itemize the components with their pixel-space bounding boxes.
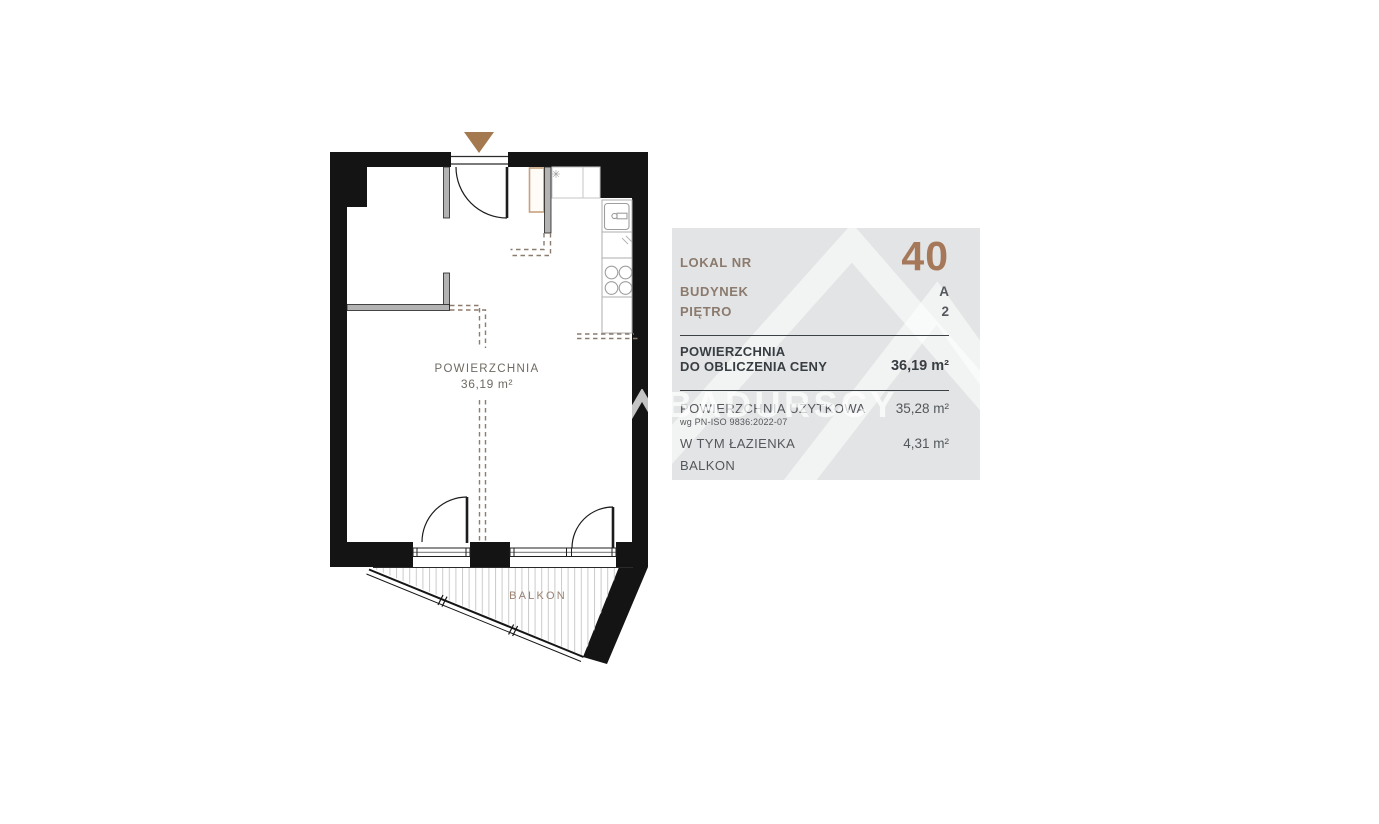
balcony-label: BALKON [509,590,567,602]
hall-partition [545,167,552,233]
bathroom-label: W TYM ŁAZIENKA [680,436,795,451]
panel-divider-2 [680,390,949,391]
bathroom-row: W TYM ŁAZIENKA 4,31 m² [680,436,949,451]
balcony-row: BALKON [680,458,949,473]
balcony-door-right [510,507,616,557]
kitchen-stove [605,266,632,294]
usable-area-value: 35,28 m² [896,401,949,416]
usable-area-row: POWIERZCHNIA UŻYTKOWA 35,28 m² [680,401,949,416]
entrance-door [456,167,507,218]
unit-number-row: LOKAL NR 40 [680,237,949,275]
unit-info-panel: LOKAL NR 40 BUDYNEK A PIĘTRO 2 POWIERZCH… [672,228,980,480]
price-area-label-line1: POWIERZCHNIA [680,344,785,359]
usable-area-label: POWIERZCHNIA UŻYTKOWA [680,401,866,416]
building-label: BUDYNEK [680,284,748,299]
floor-plan-page: ✳ [0,0,1379,824]
price-area-label-line2: DO OBLICZENIA CENY [680,359,827,374]
panel-divider [680,335,949,336]
counter-drain-mark [622,236,632,244]
usable-area-norm-note: wg PN-ISO 9836:2022-07 [680,417,949,427]
wardrobe [530,168,545,212]
balcony-door-left [413,497,470,557]
price-area-value: 36,19 m² [891,358,949,374]
price-area-label: POWIERZCHNIA DO OBLICZENIA CENY [680,345,827,374]
room-area-label: POWIERZCHNIA 36,19 m² [434,363,539,391]
entrance-arrow-icon [464,132,494,153]
asterisk-marker: ✳ [551,169,560,181]
area-value: 36,19 m² [461,377,513,391]
area-title: POWIERZCHNIA [434,363,539,375]
building-value: A [939,284,949,299]
floor-value: 2 [941,304,949,319]
floor-label: PIĘTRO [680,304,732,319]
unit-number-value: 40 [901,237,949,275]
balcony-panel-label: BALKON [680,458,735,473]
unit-number-label: LOKAL NR [680,255,752,275]
building-row: BUDYNEK A [680,284,949,299]
bathroom-value: 4,31 m² [903,436,949,451]
entrance-threshold [451,157,508,165]
floor-row: PIĘTRO 2 [680,304,949,319]
kitchen-sink [605,204,630,230]
price-area-row: POWIERZCHNIA DO OBLICZENIA CENY 36,19 m² [680,345,949,374]
